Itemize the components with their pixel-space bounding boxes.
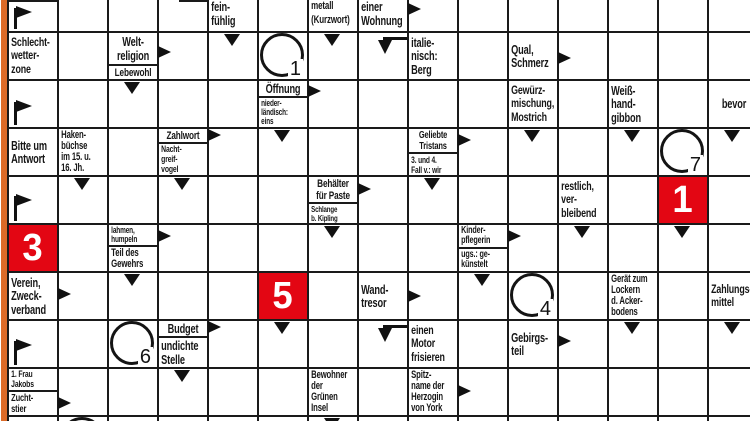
answer-cell[interactable] [707, 415, 750, 421]
answer-cell[interactable] [407, 79, 459, 129]
answer-cell[interactable] [357, 31, 409, 81]
answer-cell[interactable] [557, 271, 609, 321]
clue-cell: Welt- religionLebewohl [107, 31, 159, 81]
answer-cell[interactable] [207, 223, 259, 273]
answer-cell[interactable] [657, 127, 709, 177]
clue-text: undichte Stelle [159, 339, 207, 366]
answer-cell[interactable] [257, 175, 309, 225]
solution-number: 5 [273, 277, 293, 315]
answer-cell[interactable] [457, 271, 509, 321]
crossword-board: fein- fühligmetall (Kurzwort)einer Wohnu… [0, 0, 750, 421]
clue-cell: 1. Frau JakobsZucht- stier [7, 367, 59, 417]
clue-cell: Geliebte Tristans3. und 4. Fall v.: wir [407, 127, 459, 177]
clue-cell: Budgetundichte Stelle [157, 319, 209, 369]
clue-cell: restlich, ver- bleibend [557, 175, 609, 225]
clue-cell: einen Motor frisieren [407, 319, 459, 369]
clue-part: Qual, Schmerz [509, 33, 557, 79]
answer-cell[interactable] [557, 319, 609, 369]
clue-cell: Verein, Zweck- verband [7, 271, 59, 321]
solution-number-cell[interactable]: 1 [657, 175, 709, 225]
clue-part: fein- fühlig [209, 0, 257, 31]
answer-cell[interactable] [407, 271, 459, 321]
answer-cell[interactable] [457, 319, 509, 369]
solution-number: 3 [23, 229, 43, 267]
answer-cell[interactable] [407, 223, 459, 273]
answer-cell[interactable] [657, 415, 709, 421]
answer-cell[interactable] [507, 367, 559, 417]
clue-text: Qual, Schmerz [509, 43, 557, 70]
answer-cell[interactable] [107, 367, 159, 417]
clue-part: Teil des Gewehrs [109, 247, 157, 271]
clue-text: einer Wohnung [359, 0, 407, 27]
clue-text: Spitz- name der Herzogin von York [409, 370, 457, 415]
clue-part: Schlecht- wetter- zone [9, 33, 57, 79]
clue-text: italie- nisch: Berg [409, 36, 457, 77]
answer-cell[interactable] [557, 0, 609, 33]
answer-cell[interactable] [307, 319, 359, 369]
answer-cell[interactable] [57, 0, 109, 33]
answer-cell[interactable] [407, 415, 459, 421]
answer-cell[interactable] [607, 415, 659, 421]
clue-part: Bewohner der Grünen Insel [309, 369, 357, 415]
answer-cell[interactable] [57, 79, 109, 129]
answer-cell[interactable] [457, 31, 509, 81]
answer-cell[interactable] [107, 271, 159, 321]
clue-cell: italie- nisch: Berg [407, 31, 459, 81]
answer-cell[interactable] [207, 79, 259, 129]
answer-cell[interactable] [607, 127, 659, 177]
clue-part: Zahlungs- mittel [709, 273, 750, 319]
answer-cell[interactable] [157, 31, 209, 81]
answer-cell[interactable] [557, 127, 609, 177]
answer-cell[interactable] [307, 31, 359, 81]
clue-text: Gerät zum Lockern d. Acker- bodens [609, 274, 657, 319]
answer-cell[interactable] [357, 367, 409, 417]
answer-cell[interactable] [657, 367, 709, 417]
answer-cell[interactable] [7, 79, 59, 129]
clue-cell: fein- fühlig [207, 0, 259, 33]
clue-cell: Qual, Schmerz [507, 31, 559, 81]
answer-cell[interactable] [57, 367, 109, 417]
clue-part: Gebirgs- teil [509, 321, 557, 367]
answer-cell[interactable] [607, 175, 659, 225]
answer-cell[interactable] [57, 415, 109, 421]
answer-cell[interactable] [107, 415, 159, 421]
clue-cell: bevor [707, 79, 750, 129]
answer-cell[interactable] [457, 0, 509, 33]
clue-part: restlich, ver- bleibend [559, 177, 607, 223]
clue-text: Weiß- hand- gibbon [609, 84, 657, 125]
answer-cell[interactable] [557, 79, 609, 129]
clue-cell: Schlecht- wetter- zone [7, 31, 59, 81]
clue-part: Haken- büchse im 15. u. 16. Jh. [59, 129, 107, 175]
clue-part: Budget [159, 321, 207, 338]
clue-part: Bitte um Antwort [9, 129, 57, 175]
clue-text: Öffnung [259, 82, 307, 96]
answer-cell[interactable] [257, 0, 309, 33]
clue-cell: einer Wohnung [357, 0, 409, 33]
clue-cell: Gerät zum Lockern d. Acker- bodens [607, 271, 659, 321]
clue-text: Verein, Zweck- verband [9, 276, 57, 317]
answer-cell[interactable] [107, 319, 159, 369]
clue-text: Budget [159, 322, 207, 336]
answer-cell[interactable] [707, 175, 750, 225]
clue-cell: Zahlungs- mittel [707, 271, 750, 321]
answer-cell[interactable] [457, 367, 509, 417]
clue-cell: Haken- büchse im 15. u. 16. Jh. [57, 127, 109, 177]
answer-cell[interactable] [657, 31, 709, 81]
answer-cell[interactable] [557, 223, 609, 273]
answer-cell[interactable] [307, 127, 359, 177]
answer-cell[interactable] [157, 79, 209, 129]
answer-cell[interactable] [457, 127, 509, 177]
answer-cell[interactable] [507, 127, 559, 177]
clue-text: Gewürz- mischung, Mostrich [509, 84, 557, 125]
clue-text: Behälter für Paste [309, 178, 357, 202]
clue-cell: metall (Kurzwort) [307, 0, 359, 33]
answer-cell[interactable] [607, 31, 659, 81]
answer-cell[interactable] [157, 0, 209, 33]
clue-text: Lebewohl [109, 67, 157, 79]
clue-cell: Kinder- pflegerinugs.: ge- künstelt [457, 223, 509, 273]
clue-text: Schlecht- wetter- zone [9, 36, 57, 77]
answer-cell[interactable] [507, 223, 559, 273]
answer-cell[interactable] [7, 319, 59, 369]
answer-cell[interactable] [657, 271, 709, 321]
clue-text: Teil des Gewehrs [109, 248, 157, 271]
answer-cell[interactable] [57, 175, 109, 225]
clue-text: 1. Frau Jakobs [9, 370, 57, 390]
answer-cell[interactable] [507, 415, 559, 421]
clue-part: Gerät zum Lockern d. Acker- bodens [609, 273, 657, 319]
clue-text: Geliebte Tristans [409, 130, 457, 152]
answer-cell[interactable] [607, 0, 659, 33]
answer-cell[interactable] [157, 415, 209, 421]
clue-part: Kinder- pflegerin [459, 225, 507, 249]
clue-part: 3. und 4. Fall v.: wir [409, 154, 457, 175]
answer-cell[interactable] [507, 271, 559, 321]
answer-cell[interactable] [507, 0, 559, 33]
clue-part: nieder- ländisch: eins [259, 98, 307, 127]
clue-cell: ZahlwortNacht- greif- vogel [157, 127, 209, 177]
answer-cell[interactable] [657, 0, 709, 33]
clue-text: restlich, ver- bleibend [559, 180, 607, 221]
answer-cell[interactable] [357, 319, 409, 369]
answer-cell[interactable] [207, 271, 259, 321]
clue-text: Kinder- pflegerin [459, 226, 507, 247]
answer-cell[interactable] [557, 415, 609, 421]
clue-cell: Bitte um Antwort [7, 127, 59, 177]
answer-cell[interactable] [157, 223, 209, 273]
clue-text: Bewohner der Grünen Insel [309, 370, 357, 415]
answer-cell[interactable] [657, 223, 709, 273]
clue-part: Zahlwort [159, 129, 207, 144]
answer-cell[interactable] [357, 127, 409, 177]
clue-part: Verein, Zweck- verband [9, 273, 57, 319]
clue-part: undichte Stelle [159, 338, 207, 367]
clue-part: Behälter für Paste [309, 177, 357, 204]
answer-cell[interactable] [257, 223, 309, 273]
answer-cell[interactable] [307, 79, 359, 129]
answer-cell[interactable] [7, 415, 59, 421]
clue-part: einer Wohnung [359, 0, 407, 31]
clue-part: einen Motor frisieren [409, 321, 457, 367]
answer-cell[interactable] [707, 127, 750, 177]
answer-cell[interactable] [707, 223, 750, 273]
answer-cell[interactable] [657, 319, 709, 369]
clue-part: Welt- religion [109, 33, 157, 66]
clue-part: metall (Kurzwort) [309, 0, 357, 31]
clue-part: Geliebte Tristans [409, 129, 457, 154]
answer-cell[interactable] [107, 79, 159, 129]
answer-cell[interactable] [557, 367, 609, 417]
clue-part: Wand- tresor [359, 273, 407, 319]
clue-text: Nacht- greif- vogel [159, 145, 207, 175]
answer-cell[interactable] [457, 79, 509, 129]
clue-part: 1. Frau Jakobs [9, 369, 57, 392]
clue-cell: Spitz- name der Herzogin von York [407, 367, 459, 417]
clue-part: ugs.: ge- künstelt [459, 249, 507, 271]
answer-cell[interactable] [257, 367, 309, 417]
clue-text: Zucht- stier [9, 393, 57, 415]
answer-cell[interactable] [257, 319, 309, 369]
answer-cell[interactable] [307, 223, 359, 273]
clue-cell: Wand- tresor [357, 271, 409, 321]
answer-cell[interactable] [307, 271, 359, 321]
answer-cell[interactable] [357, 79, 409, 129]
answer-cell[interactable] [7, 175, 59, 225]
answer-cell[interactable] [357, 175, 409, 225]
clue-text: nieder- ländisch: eins [259, 99, 307, 127]
answer-cell[interactable] [557, 31, 609, 81]
answer-cell[interactable] [7, 0, 59, 33]
clue-text: Welt- religion [109, 35, 157, 62]
clue-part: bevor [709, 81, 750, 127]
answer-cell[interactable] [407, 0, 459, 33]
answer-cell[interactable] [57, 223, 109, 273]
answer-cell[interactable] [257, 31, 309, 81]
clue-text: Bitte um Antwort [9, 139, 57, 166]
clue-part: Spitz- name der Herzogin von York [409, 369, 457, 415]
clue-text: ugs.: ge- künstelt [459, 250, 507, 271]
clue-part: italie- nisch: Berg [409, 33, 457, 79]
answer-cell[interactable] [207, 319, 259, 369]
clue-text: lahmen, humpeln [109, 226, 157, 245]
solution-number: 1 [673, 181, 693, 219]
answer-cell[interactable] [207, 367, 259, 417]
clue-cell: Öffnungnieder- ländisch: eins [257, 79, 309, 129]
answer-cell[interactable] [607, 223, 659, 273]
clue-text: 3. und 4. Fall v.: wir [409, 155, 457, 175]
clue-text: Haken- büchse im 15. u. 16. Jh. [59, 130, 107, 175]
answer-cell[interactable] [207, 31, 259, 81]
answer-cell[interactable] [657, 79, 709, 129]
answer-cell[interactable] [257, 415, 309, 421]
answer-cell[interactable] [457, 415, 509, 421]
clue-part: Weiß- hand- gibbon [609, 81, 657, 127]
clue-cell: Behälter für PasteSchlange b. Kipling [307, 175, 359, 225]
answer-cell[interactable] [707, 367, 750, 417]
answer-cell[interactable] [57, 319, 109, 369]
answer-cell[interactable] [607, 319, 659, 369]
answer-cell[interactable] [207, 175, 259, 225]
answer-cell[interactable] [157, 175, 209, 225]
clue-cell: lahmen, humpelnTeil des Gewehrs [107, 223, 159, 273]
answer-cell[interactable] [407, 175, 459, 225]
clue-text: fein- fühlig [209, 0, 257, 27]
clue-text: Gebirgs- teil [509, 331, 557, 358]
answer-cell[interactable] [607, 367, 659, 417]
clue-text: Wand- tresor [359, 283, 407, 310]
clue-cell: Gebirgs- teil [507, 319, 559, 369]
clue-text: bevor [709, 97, 750, 111]
clue-cell: Weiß- hand- gibbon [607, 79, 659, 129]
answer-cell[interactable] [357, 223, 409, 273]
answer-cell[interactable] [707, 0, 750, 33]
answer-cell[interactable] [107, 127, 159, 177]
answer-cell[interactable] [57, 271, 109, 321]
clue-text: Schlange b. Kipling [309, 205, 357, 223]
clue-cell: Bewohner der Grünen Insel [307, 367, 359, 417]
clue-cell: Gewürz- mischung, Mostrich [507, 79, 559, 129]
answer-cell[interactable] [107, 175, 159, 225]
answer-cell[interactable] [307, 415, 359, 421]
clue-part: Öffnung [259, 81, 307, 98]
answer-cell[interactable] [157, 367, 209, 417]
clue-text: metall (Kurzwort) [309, 0, 357, 27]
answer-cell[interactable] [57, 31, 109, 81]
clue-text: Zahlungs- mittel [709, 283, 750, 310]
answer-cell[interactable] [707, 319, 750, 369]
clue-part: Nacht- greif- vogel [159, 144, 207, 175]
answer-cell[interactable] [357, 415, 409, 421]
answer-cell[interactable] [457, 175, 509, 225]
answer-cell[interactable] [157, 271, 209, 321]
answer-cell[interactable] [107, 0, 159, 33]
clue-text: einen Motor frisieren [409, 324, 457, 365]
clue-text: Zahlwort [159, 130, 207, 142]
answer-cell[interactable] [207, 127, 259, 177]
clue-part: Schlange b. Kipling [309, 204, 357, 223]
answer-cell[interactable] [507, 175, 559, 225]
answer-cell[interactable] [257, 127, 309, 177]
clue-part: Zucht- stier [9, 392, 57, 415]
solution-number-cell[interactable]: 3 [7, 223, 59, 273]
clue-part: lahmen, humpeln [109, 225, 157, 247]
clue-part: Lebewohl [109, 66, 157, 79]
answer-cell[interactable] [707, 31, 750, 81]
solution-number-cell[interactable]: 5 [257, 271, 309, 321]
answer-cell[interactable] [207, 415, 259, 421]
clue-part: Gewürz- mischung, Mostrich [509, 81, 557, 127]
